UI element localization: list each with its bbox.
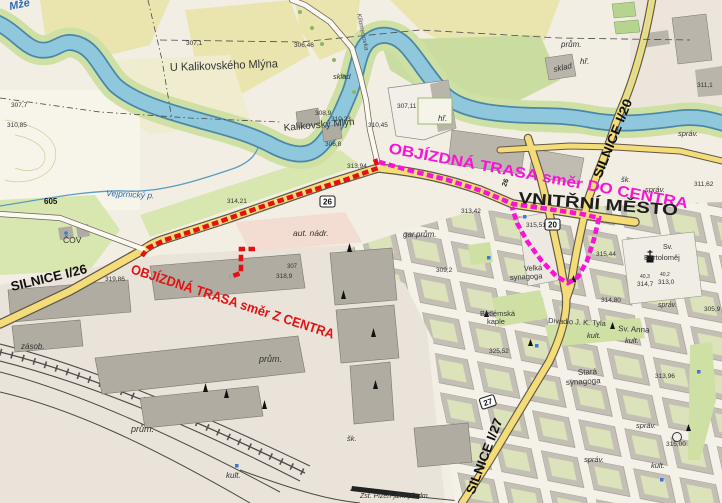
elevation-label: 313,0: [658, 279, 675, 286]
place-label: synagoga: [566, 376, 602, 387]
place-label: Sv.: [663, 244, 673, 251]
elevation-label: 307,1: [186, 40, 203, 47]
facility-label: gar.: [403, 230, 417, 239]
facility-label: správ.: [636, 421, 656, 430]
elevation-label: 315,51: [526, 222, 546, 229]
road-shield-20: 20: [545, 219, 560, 230]
road-shield-26: 26: [320, 196, 335, 207]
city-map-canvas: 262027 OBJÍZDNÁ TRASA směr DO CENTRAOBJÍ…: [0, 0, 722, 503]
elevation-label: 314,80: [601, 297, 621, 304]
facility-label: hř.: [580, 57, 589, 66]
facility-label: správ.: [678, 129, 698, 138]
elevation-label: 307,7: [11, 102, 28, 109]
elevation-label: 310,45: [368, 122, 388, 129]
facility-label: prům.: [258, 354, 282, 364]
elevation-label: 310,23: [331, 116, 351, 123]
elevation-label: 314,21: [227, 198, 247, 205]
elevation-label: 315,00: [666, 441, 686, 448]
svg-text:26: 26: [323, 198, 332, 207]
facility-label: kult.: [226, 471, 241, 480]
elevation-label: 40,3: [640, 274, 650, 280]
elevation-label: 313,42: [461, 208, 481, 215]
elevation-label: 311,62: [694, 181, 714, 188]
place-label: kaple: [487, 317, 505, 326]
elevation-label: 311,1: [697, 82, 713, 89]
place-label: synagoga: [510, 271, 544, 282]
road-number-605: 605: [44, 197, 58, 206]
place-label: Stará: [578, 367, 598, 377]
elevation-label: 40,2: [660, 272, 670, 278]
elevation-label: 318,9: [276, 273, 293, 280]
elevation-label: 314,7: [637, 281, 654, 288]
elevation-label: 310,85: [7, 122, 27, 129]
facility-label: aut. nádr.: [293, 228, 329, 238]
facility-label: správ.: [658, 302, 677, 309]
elevation-label: 306,46: [294, 42, 314, 49]
facility-label: kult.: [587, 331, 601, 340]
place-label: Zst. Plzeň-jižní předm.: [359, 493, 430, 500]
elevation-label: 308,9: [315, 110, 332, 117]
facility-label: prům.: [415, 230, 436, 239]
place-label: Bartoloměj: [644, 253, 680, 262]
facility-label: kult.: [651, 461, 665, 470]
elevation-label: 306,8: [325, 141, 342, 148]
elevation-label: 319,86: [105, 276, 125, 283]
svg-text:20: 20: [548, 221, 557, 230]
facility-label: ČOV: [63, 235, 82, 245]
facility-label: prům.: [130, 424, 154, 434]
elevation-label: 315,44: [596, 251, 616, 258]
elevation-label: 325,52: [489, 348, 509, 355]
place-label: Sv. Anna: [618, 324, 650, 335]
elevation-label: 307,11: [397, 103, 417, 110]
elevation-label: 313,96: [655, 373, 675, 380]
facility-label: šk.: [621, 175, 631, 184]
facility-label: šk.: [347, 434, 357, 443]
facility-label: správ.: [584, 455, 604, 464]
facility-label: kult.: [625, 336, 639, 345]
facility-label: prům.: [560, 40, 581, 49]
detour-map: 262027 OBJÍZDNÁ TRASA směr DO CENTRAOBJÍ…: [0, 0, 722, 503]
elevation-label: 313,94: [347, 163, 367, 170]
elevation-label: 309,2: [436, 267, 453, 274]
facility-label: správ.: [645, 185, 665, 194]
facility-label: sklad: [333, 72, 351, 81]
facility-label: hř.: [438, 114, 447, 123]
elevation-label: 305,9: [704, 306, 721, 313]
elevation-label: 307: [287, 264, 298, 270]
facility-label: zásob.: [20, 342, 45, 351]
